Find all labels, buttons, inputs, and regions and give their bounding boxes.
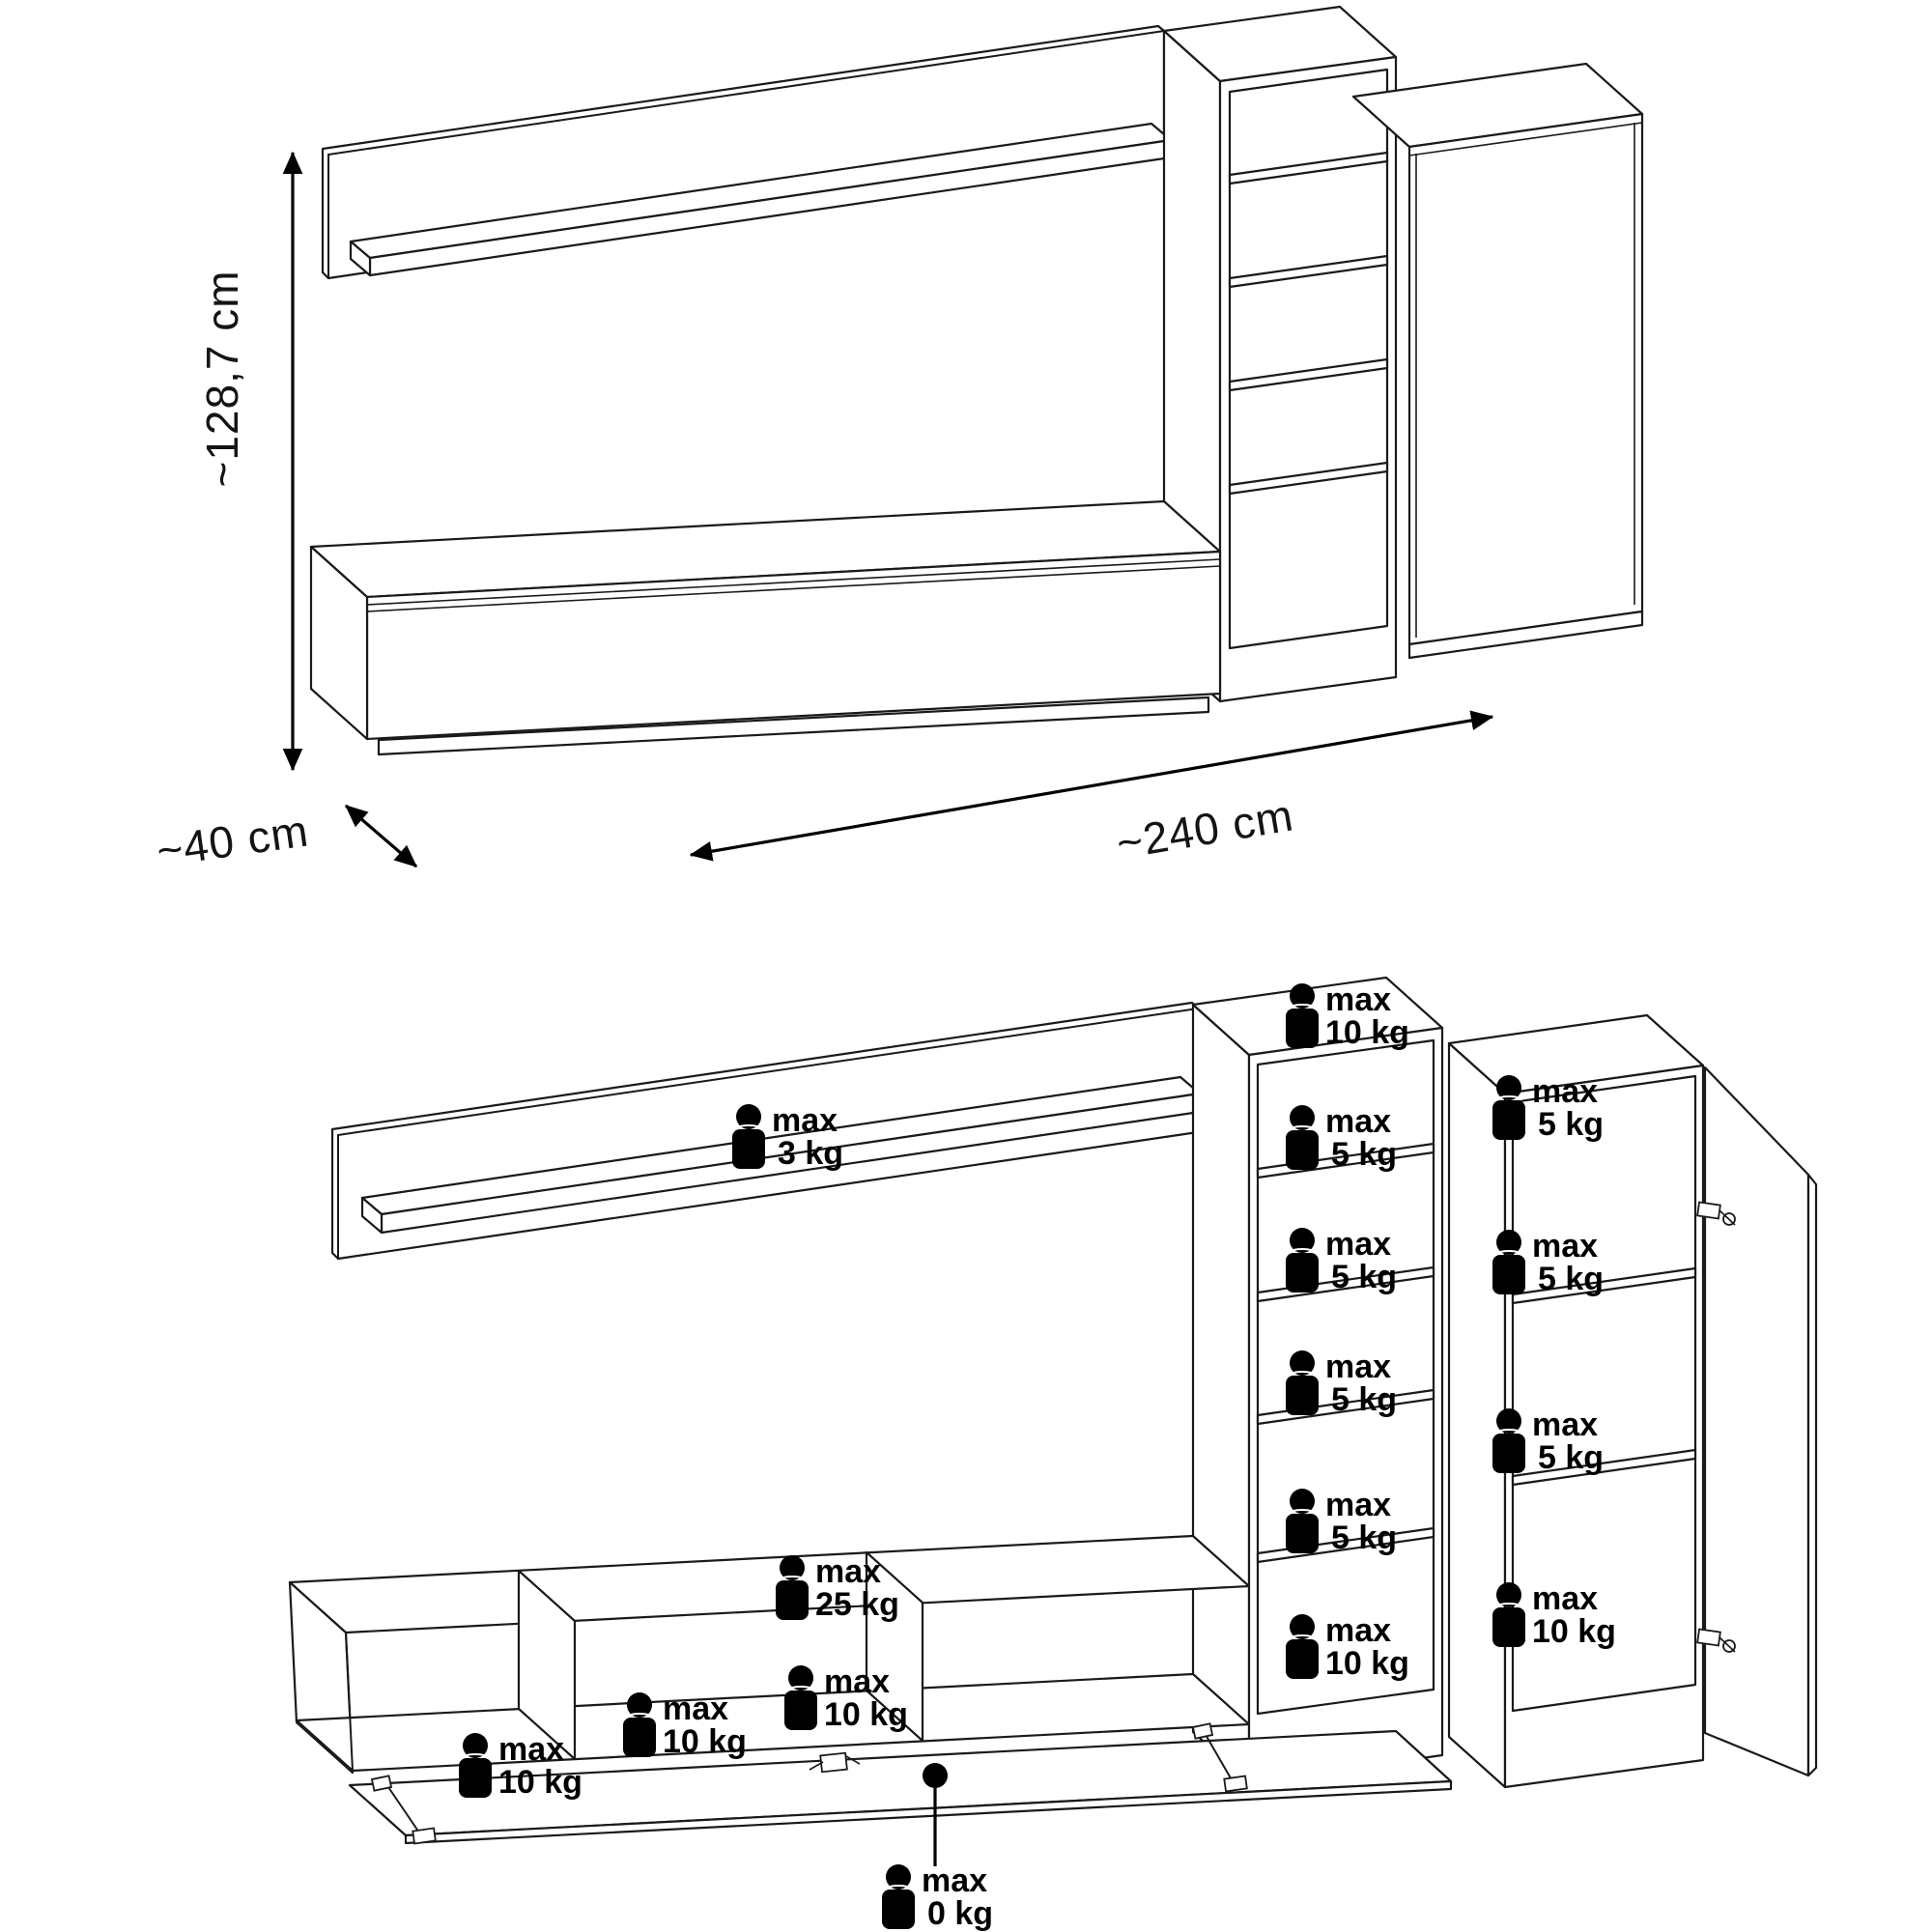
weight-label-cabinet-shelf-2: max 5 kg [1492, 1406, 1604, 1476]
weight-icon [1286, 983, 1319, 1048]
svg-text:5 kg: 5 kg [1331, 1259, 1397, 1295]
weight-icon [623, 1692, 656, 1757]
svg-text:max: max [663, 1690, 728, 1727]
weight-icon [732, 1104, 765, 1169]
weight-icon [882, 1864, 915, 1929]
svg-text:10 kg: 10 kg [498, 1764, 582, 1801]
svg-text:3 kg: 3 kg [778, 1135, 843, 1172]
weight-icon [1286, 1228, 1319, 1293]
weight-icon [776, 1555, 809, 1620]
svg-text:max: max [1532, 1580, 1598, 1617]
svg-text:max: max [1532, 1228, 1598, 1264]
weight-icon [1492, 1075, 1525, 1140]
svg-text:max: max [498, 1731, 564, 1768]
svg-text:max: max [1532, 1406, 1598, 1443]
svg-text:10 kg: 10 kg [824, 1696, 908, 1733]
weight-label-tv-top: max 25 kg [776, 1553, 899, 1623]
weight-label-tower-shelf-4: max 5 kg [1286, 1487, 1397, 1556]
weight-label-cabinet-bottom: max 10 kg [1492, 1580, 1616, 1650]
weight-icon [784, 1665, 817, 1730]
weight-label-cabinet-shelf-1: max 5 kg [1492, 1228, 1604, 1297]
weight-label-tv-right: max 10 kg [784, 1663, 908, 1733]
svg-text:10 kg: 10 kg [1325, 1645, 1409, 1682]
flap-pointer-dot [923, 1763, 948, 1788]
svg-text:max: max [922, 1862, 987, 1899]
tower-left-side [1193, 1005, 1249, 1782]
svg-text:5 kg: 5 kg [1331, 1520, 1397, 1556]
weight-icon [1492, 1408, 1525, 1473]
dimension-label-depth: ~40 cm [154, 805, 312, 876]
svg-text:5 kg: 5 kg [1538, 1439, 1604, 1476]
svg-text:5 kg: 5 kg [1538, 1261, 1604, 1297]
weight-icon [1286, 1350, 1319, 1415]
svg-text:max: max [1325, 1612, 1391, 1649]
svg-text:5 kg: 5 kg [1331, 1136, 1397, 1173]
weight-icon [1286, 1614, 1319, 1679]
svg-text:10 kg: 10 kg [663, 1723, 747, 1760]
weight-label-tower-bottom: max 10 kg [1286, 1612, 1409, 1682]
svg-text:10 kg: 10 kg [1325, 1014, 1409, 1051]
furniture-diagram: ~128,7 cm ~40 cm ~240 cm [0, 0, 1932, 1932]
svg-text:max: max [1325, 1103, 1391, 1140]
dimension-arrow-width [691, 717, 1492, 855]
svg-text:max: max [1325, 1226, 1391, 1263]
cabinet-door-edge [1808, 1175, 1816, 1776]
weight-label-tower-shelf-2: max 5 kg [1286, 1226, 1397, 1295]
weight-icon [459, 1733, 492, 1798]
weight-label-tv-middle: max 10 kg [623, 1690, 747, 1760]
svg-text:10 kg: 10 kg [1532, 1613, 1616, 1650]
svg-text:max: max [1325, 1349, 1391, 1385]
weight-label-tower-shelf-1: max 5 kg [1286, 1103, 1397, 1173]
tv-cabinet-top [290, 1536, 1249, 1633]
dimension-label-width: ~240 cm [1113, 789, 1297, 868]
svg-text:5 kg: 5 kg [1331, 1381, 1397, 1418]
svg-text:0 kg: 0 kg [927, 1895, 993, 1932]
weight-icon [1286, 1489, 1319, 1553]
weight-icon [1492, 1582, 1525, 1647]
weight-label-wall-shelf: max 3 kg [732, 1102, 843, 1172]
weight-icon [1286, 1105, 1319, 1170]
svg-text:max: max [1325, 1487, 1391, 1523]
weight-icon [1492, 1230, 1525, 1294]
cabinet-door-open [1705, 1067, 1808, 1776]
svg-text:max: max [1532, 1073, 1598, 1110]
svg-text:max: max [772, 1102, 838, 1139]
cabinet-left-side [1449, 1043, 1505, 1787]
weight-label-tower-top: max 10 kg [1286, 981, 1409, 1051]
weight-label-tower-shelf-3: max 5 kg [1286, 1349, 1397, 1418]
svg-text:max: max [824, 1663, 890, 1700]
top-view: ~128,7 cm ~40 cm ~240 cm [154, 7, 1642, 876]
svg-text:max: max [1325, 981, 1391, 1018]
dimension-arrow-depth [346, 806, 416, 867]
cabinet-door [1409, 114, 1642, 644]
dimension-label-height: ~128,7 cm [197, 270, 247, 487]
bottom-view: max 3 kg max 10 kg max 5 kg max 5 kg max… [290, 978, 1816, 1932]
weight-label-tv-left: max 10 kg [459, 1731, 582, 1801]
weight-label-cabinet-top: max 5 kg [1492, 1073, 1604, 1143]
svg-text:max: max [815, 1553, 881, 1590]
svg-text:25 kg: 25 kg [815, 1586, 899, 1623]
svg-text:5 kg: 5 kg [1538, 1106, 1604, 1143]
weight-label-tv-flap: max 0 kg [882, 1862, 993, 1932]
